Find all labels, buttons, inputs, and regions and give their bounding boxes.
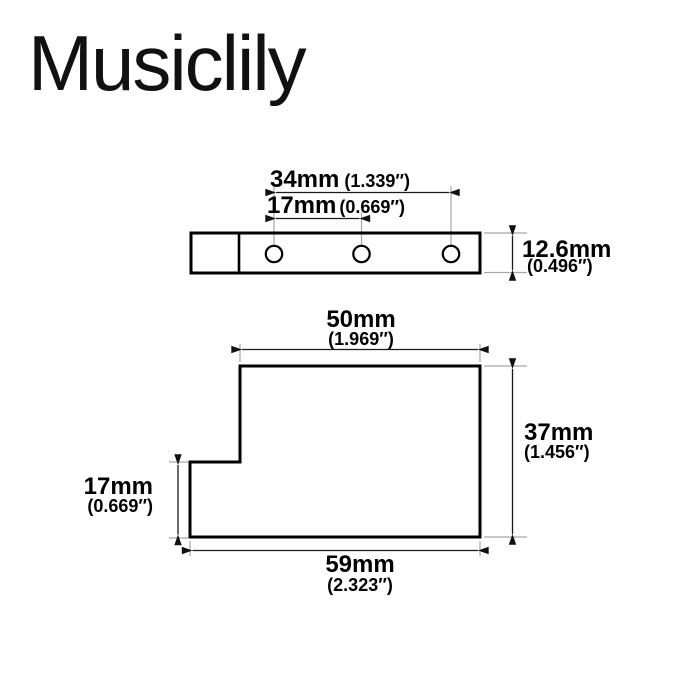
side-view-drawing: 50mm (1.969″) 37mm (1.456″) 17mm (0.669″…: [84, 306, 594, 595]
dim-label-59mm: 59mm: [325, 551, 394, 578]
top-view-drawing: 34mm(1.339″) 17mm(0.669″) 12.6mm (0.496″…: [191, 166, 611, 276]
dim-label-59mm-inch: (2.323″): [327, 575, 393, 595]
bracket-profile-outline: [190, 366, 480, 537]
product-dimension-diagram: Musiclily: [0, 0, 700, 700]
dim-label-17mm-notch-inch: (0.669″): [87, 496, 153, 516]
dim-label-37mm-inch: (1.456″): [524, 442, 590, 462]
dim-label-12.6mm-inch: (0.496″): [527, 256, 593, 276]
dim-label-17mm-holes: 17mm(0.669″): [267, 192, 405, 219]
screw-hole-right: [443, 246, 459, 262]
screw-hole-center: [353, 246, 369, 262]
dim-label-50mm-inch: (1.969″): [328, 329, 394, 349]
screw-hole-left: [266, 246, 282, 262]
technical-drawing: 34mm(1.339″) 17mm(0.669″) 12.6mm (0.496″…: [0, 0, 700, 700]
plate-outline: [191, 233, 480, 273]
dim-label-34mm: 34mm(1.339″): [270, 166, 410, 193]
